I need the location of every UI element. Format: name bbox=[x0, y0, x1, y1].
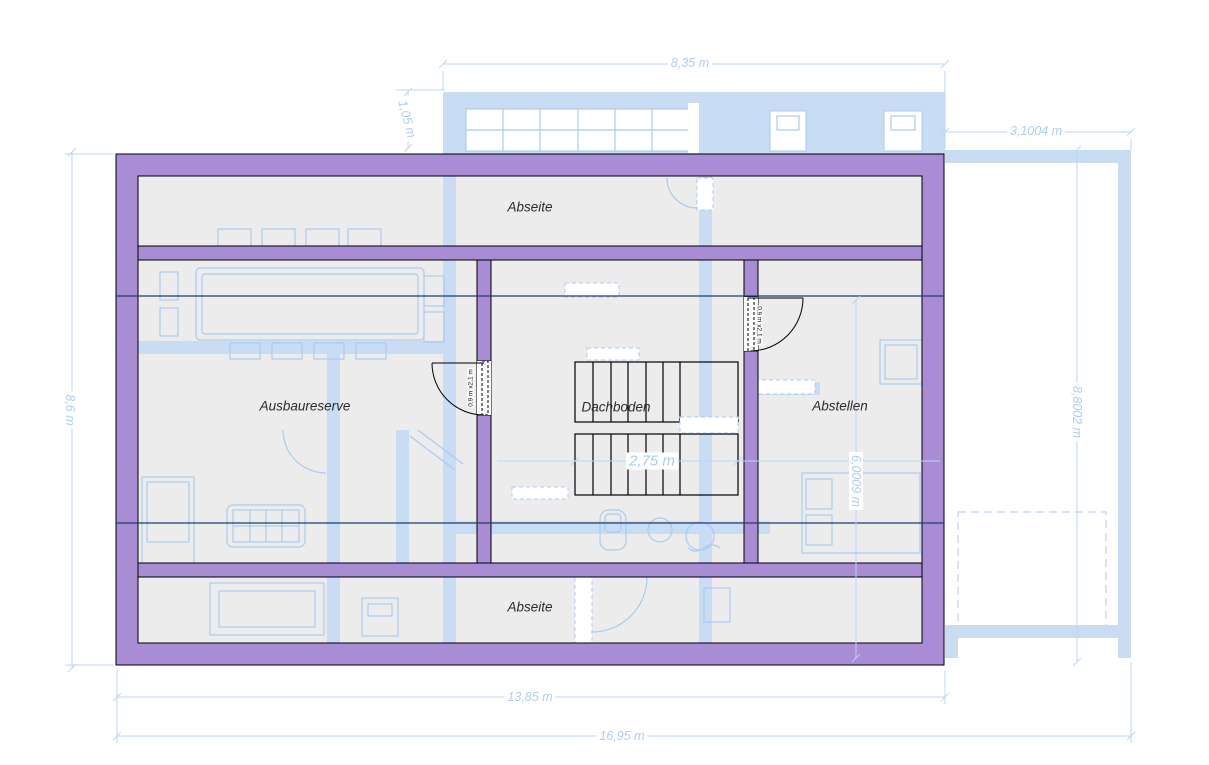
wall-dachboden-left-upper[interactable] bbox=[477, 260, 491, 361]
lower-wall-right-side bbox=[1118, 163, 1131, 658]
door-right-size-label: 0,9 m x2,1 m bbox=[756, 305, 763, 345]
dim-label-right-height: 8,8002 m bbox=[1070, 383, 1084, 441]
dim-label-left-height: 8,6 m bbox=[63, 391, 77, 428]
room-label-ausbaureserve: Ausbaureserve bbox=[260, 399, 351, 414]
room-label-abseite-bottom: Abseite bbox=[507, 600, 552, 615]
door-left-size-label: 0,9 m x2,1 m bbox=[468, 368, 475, 408]
floorplan-canvas: Abseite Ausbaureserve Dachboden Abstelle… bbox=[0, 0, 1209, 765]
dim-label-total-width: 16,95 m bbox=[596, 729, 647, 743]
lower-opening-chip bbox=[587, 348, 639, 360]
lower-wall-band bbox=[327, 341, 340, 645]
room-label-abseite-top: Abseite bbox=[507, 200, 552, 215]
stair-landing-chip bbox=[680, 417, 738, 433]
dim-label-stair-width: 2,75 m bbox=[626, 453, 678, 470]
lower-wall-right-bottom bbox=[945, 625, 1118, 638]
lower-terrace-dashed bbox=[958, 512, 1106, 633]
wall-bottom-abseite[interactable] bbox=[138, 563, 922, 577]
lower-wall-right-top bbox=[945, 150, 1131, 163]
wall-dachboden-left-lower[interactable] bbox=[477, 415, 491, 563]
door-opening-left bbox=[477, 361, 491, 415]
floorplan-drawing bbox=[0, 0, 1209, 765]
lower-wall-gap bbox=[688, 103, 699, 153]
lower-opening-chip bbox=[512, 487, 568, 499]
wall-dachboden-right-lower[interactable] bbox=[744, 351, 758, 563]
lower-opening-chip bbox=[755, 380, 815, 394]
wall-top-abseite[interactable] bbox=[138, 246, 922, 260]
lower-furniture bbox=[770, 111, 806, 151]
dim-label-attic-width: 13,85 m bbox=[504, 690, 555, 704]
lower-furniture bbox=[884, 111, 922, 151]
dim-label-storage-height: 6,0009 m bbox=[849, 452, 863, 510]
dim-label-top-width: 8,35 m bbox=[668, 56, 712, 70]
lower-wall-band bbox=[396, 430, 409, 577]
room-label-abstellen: Abstellen bbox=[812, 399, 868, 414]
dim-label-right-extension: 3,1004 m bbox=[1007, 124, 1065, 138]
lower-opening-chip bbox=[575, 577, 592, 643]
lower-wall-stub bbox=[945, 638, 958, 658]
lower-opening-chip bbox=[565, 283, 619, 297]
wall-dachboden-right-upper[interactable] bbox=[744, 260, 758, 297]
room-label-dachboden: Dachboden bbox=[581, 400, 650, 415]
lower-opening-chip bbox=[697, 178, 713, 210]
